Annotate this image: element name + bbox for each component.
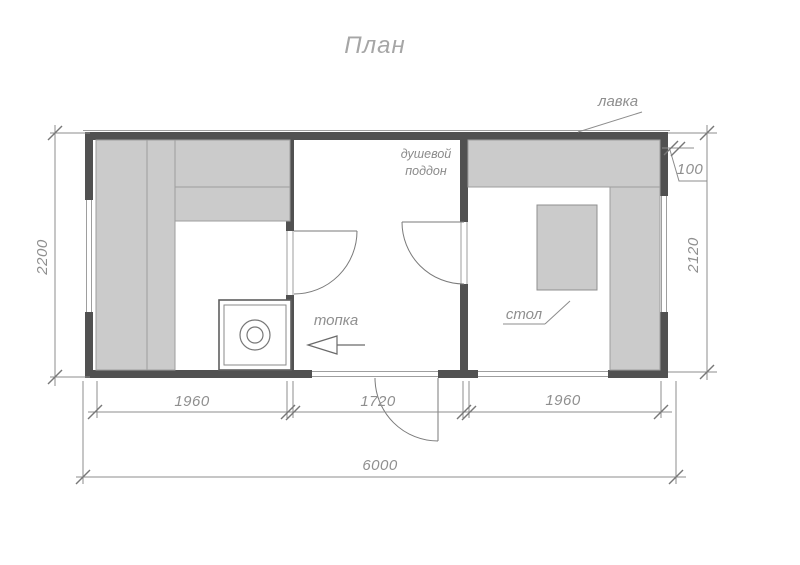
dim-offset-top-right: 100 xyxy=(673,161,707,178)
dim-room-right-width: 1960 xyxy=(533,392,593,409)
dim-room-middle-width: 1720 xyxy=(348,393,408,410)
table xyxy=(537,205,597,290)
dim-room-left-width: 1960 xyxy=(162,393,222,410)
stove xyxy=(219,300,291,370)
firebox-arrow-icon xyxy=(308,336,365,354)
shower-tray-label: душевой поддон xyxy=(393,146,459,180)
bench-label: лавка xyxy=(598,93,638,110)
window-left xyxy=(84,200,94,312)
dim-height-right: 2120 xyxy=(685,225,703,285)
plan-title: План xyxy=(320,32,430,60)
firebox-label: топка xyxy=(308,312,364,329)
table-label: стол xyxy=(503,306,545,323)
dim-height-left: 2200 xyxy=(34,227,52,287)
floor-plan-drawing xyxy=(0,0,800,565)
dim-total-width: 6000 xyxy=(350,457,410,474)
floor-plan-canvas: План лавка душевой поддон топка стол 220… xyxy=(0,0,800,565)
